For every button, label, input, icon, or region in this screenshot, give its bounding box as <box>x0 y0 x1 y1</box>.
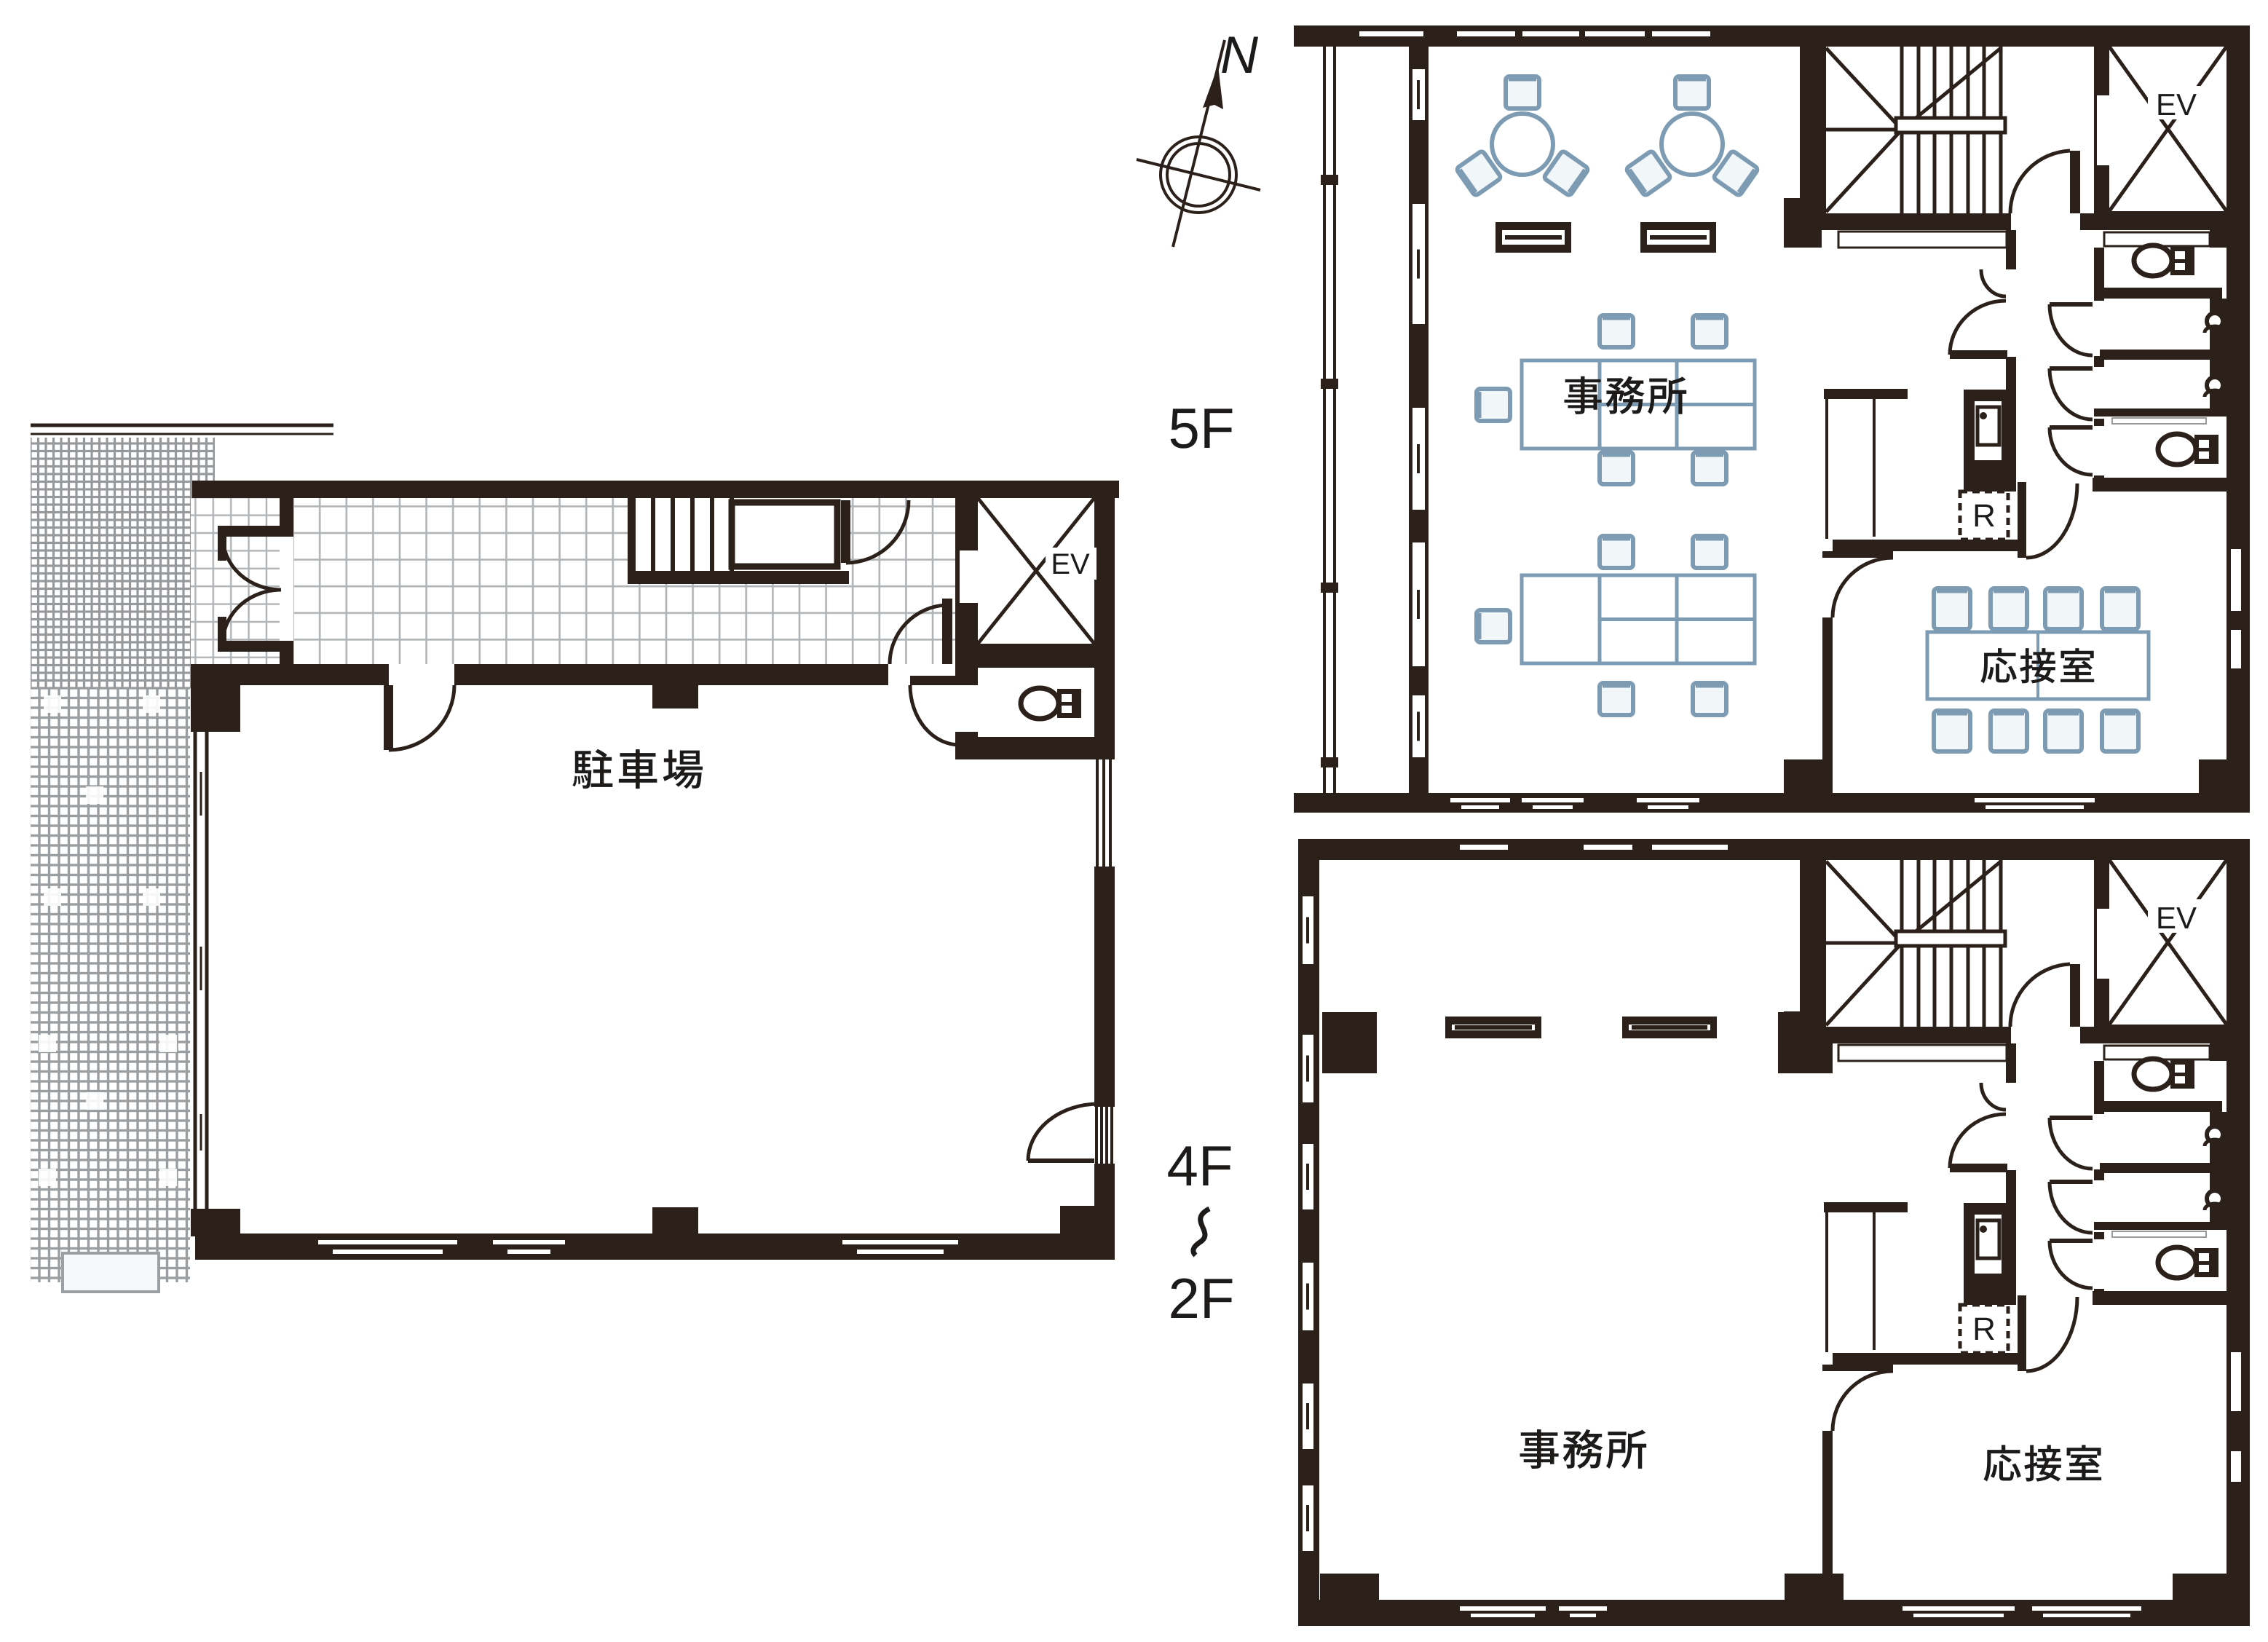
svg-text:5F: 5F <box>1168 396 1234 460</box>
svg-text:R: R <box>1972 498 1996 534</box>
svg-text:2F: 2F <box>1168 1266 1234 1330</box>
svg-text:4F: 4F <box>1166 1134 1233 1198</box>
svg-text:EV: EV <box>1051 548 1090 580</box>
svg-text:R: R <box>1972 1311 1996 1347</box>
svg-text:EV: EV <box>2156 87 2197 122</box>
svg-text:EV: EV <box>2156 901 2197 935</box>
svg-text:N: N <box>1220 26 1259 84</box>
